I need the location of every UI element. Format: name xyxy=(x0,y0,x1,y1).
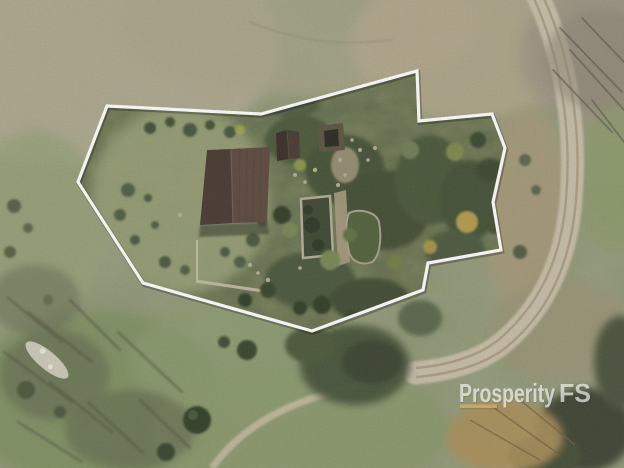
aerial-property-photo: Prosperity FS xyxy=(0,0,624,468)
watermark: Prosperity FS xyxy=(459,378,591,408)
brand-text-primary: Prosperity xyxy=(459,378,555,408)
brand-underline xyxy=(460,405,497,409)
aerial-photo-canvas: Prosperity FS xyxy=(0,0,624,468)
brand-text-secondary: FS xyxy=(559,378,591,408)
